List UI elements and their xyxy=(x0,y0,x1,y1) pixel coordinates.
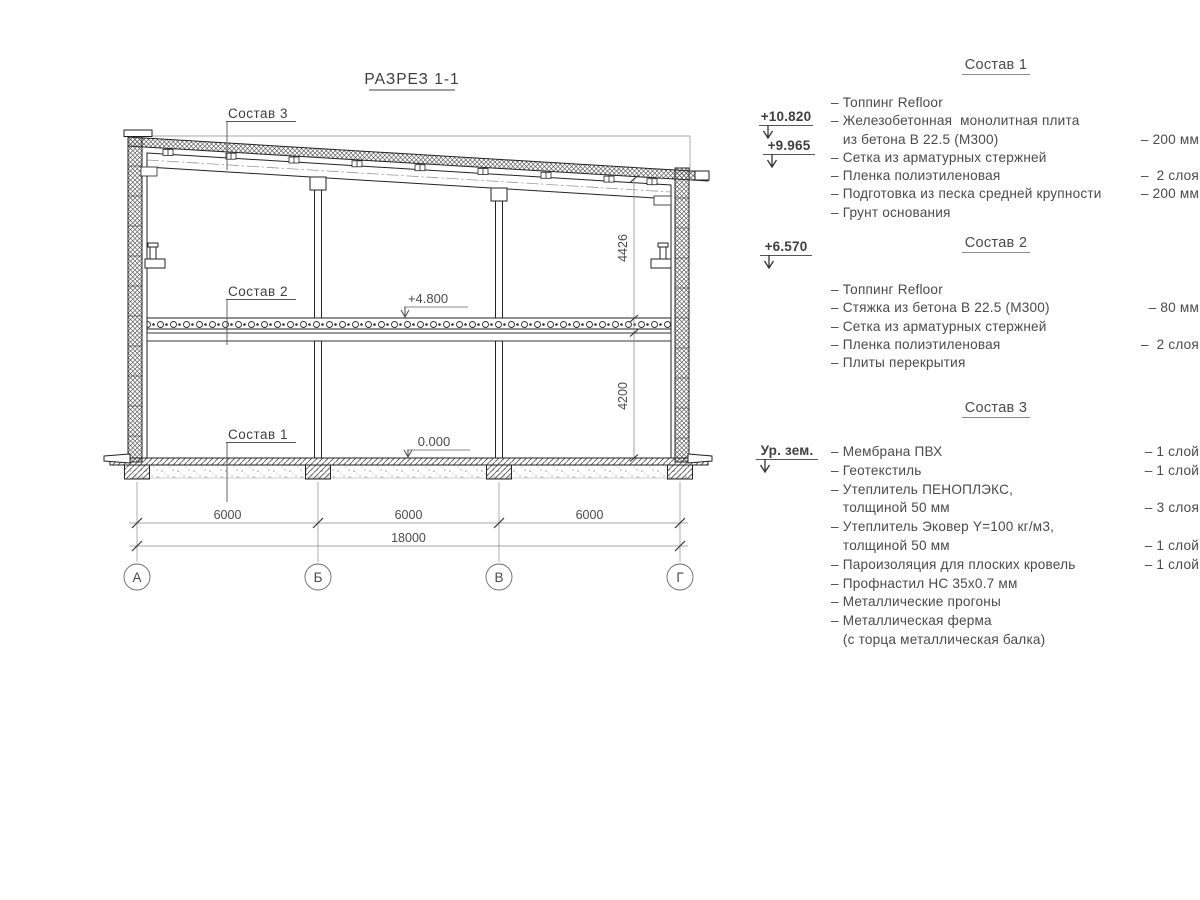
elevation-arrow-icon xyxy=(758,459,772,475)
section-drawing: РАЗРЕЗ 1-1 xyxy=(0,0,760,660)
list-item: – Профнастил НС 35х0.7 мм xyxy=(831,576,1199,595)
mid-floor-beam xyxy=(147,333,671,341)
list-item: – Подготовка из песка средней крупности–… xyxy=(831,186,1199,204)
list-item: – Грунт основания xyxy=(831,205,1199,223)
svg-text:Состав 1: Состав 1 xyxy=(228,427,288,442)
floor-slab-hatch xyxy=(110,458,708,465)
svg-text:РАЗРЕЗ 1-1: РАЗРЕЗ 1-1 xyxy=(364,71,459,88)
elevation-mark-9965: +9.965 xyxy=(763,138,815,155)
elevation-mark-10820: +10.820 xyxy=(759,109,813,126)
list-title: Состав 3 xyxy=(962,400,1031,418)
composition-list-1: Состав 1 – Топпинг Refloor – Железобетон… xyxy=(831,56,1199,223)
right-wall xyxy=(654,168,689,462)
elevation-arrow-icon xyxy=(401,307,409,317)
list-title: Состав 1 xyxy=(962,57,1031,75)
elevation-value: +6.570 xyxy=(765,239,808,254)
elevation-zero: 0.000 xyxy=(404,434,470,457)
svg-text:Г: Г xyxy=(676,570,684,585)
svg-text:4426: 4426 xyxy=(616,234,630,262)
mid-floor-slab xyxy=(147,318,671,341)
wall-consoles xyxy=(145,243,671,268)
svg-text:0.000: 0.000 xyxy=(418,434,451,449)
sand-bed xyxy=(130,465,688,478)
svg-text:В: В xyxy=(494,570,503,585)
list-item: – Топпинг Refloor xyxy=(831,282,1199,300)
axis-bubbles: А Б В Г xyxy=(124,564,693,590)
list-item: – Металлические прогоны xyxy=(831,594,1199,613)
list-item: – Плиты перекрытия xyxy=(831,355,1199,373)
elevation-arrow-icon xyxy=(404,450,412,457)
elevation-value: +10.820 xyxy=(761,109,812,124)
list-item: – Стяжка из бетона В 22.5 (М300)– 80 мм xyxy=(831,300,1199,318)
svg-text:6000: 6000 xyxy=(395,508,423,522)
svg-text:Состав 2: Состав 2 xyxy=(228,284,288,299)
list-item: – Пленка полиэтиленовая– 2 слоя xyxy=(831,168,1199,186)
list-item: – Мембрана ПВХ– 1 слой xyxy=(831,444,1199,463)
list-item: – Железобетонная монолитная плита xyxy=(831,113,1199,131)
drawing-title: РАЗРЕЗ 1-1 xyxy=(364,71,459,90)
svg-text:А: А xyxy=(132,570,141,585)
elevation-value: +9.965 xyxy=(768,138,811,153)
composition-list-2: Состав 2 – Топпинг Refloor – Стяжка из б… xyxy=(831,234,1199,373)
column-v-lower xyxy=(496,341,503,458)
elevation-arrow-icon xyxy=(765,154,779,170)
list-item: – Пленка полиэтиленовая– 2 слоя xyxy=(831,337,1199,355)
list-item: толщиной 50 мм– 1 слой xyxy=(831,538,1199,557)
svg-text:Б: Б xyxy=(314,570,323,585)
list-item: – Утеплитель ПЕНОПЛЭКС, xyxy=(831,482,1199,501)
elevation-mark-ground: Ур. зем. xyxy=(756,443,818,460)
list-item: (с торца металлическая балка) xyxy=(831,632,1199,651)
svg-text:6000: 6000 xyxy=(214,508,242,522)
list-item: – Топпинг Refloor xyxy=(831,95,1199,113)
elevation-value: Ур. зем. xyxy=(761,443,814,458)
column-b-lower xyxy=(315,341,322,458)
svg-text:+4.800: +4.800 xyxy=(408,291,448,306)
svg-text:4200: 4200 xyxy=(616,382,630,410)
list-item: – Утеплитель Эковер Y=100 кг/м3, xyxy=(831,519,1199,538)
elevation-mark-6570: +6.570 xyxy=(760,239,812,256)
extension-lines xyxy=(137,482,680,562)
slab-edge-left xyxy=(104,454,130,463)
list-item: – Сетка из арматурных стержней xyxy=(831,150,1199,168)
list-item: – Сетка из арматурных стержней xyxy=(831,319,1199,337)
column-v-upper xyxy=(496,201,503,318)
svg-text:18000: 18000 xyxy=(391,531,426,545)
horizontal-dimensions: 6000 6000 6000 18000 xyxy=(129,482,688,562)
column-b-upper xyxy=(315,190,322,318)
list-item: толщиной 50 мм– 3 слоя xyxy=(831,500,1199,519)
list-item: из бетона В 22.5 (М300)– 200 мм xyxy=(831,132,1199,150)
elevation-mid: +4.800 xyxy=(401,291,468,317)
left-wall xyxy=(124,130,157,462)
list-item: – Пароизоляция для плоских кровель– 1 сл… xyxy=(831,557,1199,576)
elevation-arrow-icon xyxy=(762,255,776,271)
list-item: – Геотекстиль– 1 слой xyxy=(831,463,1199,482)
slab-edge-right xyxy=(688,454,712,463)
svg-text:Состав 3: Состав 3 xyxy=(228,106,288,121)
svg-text:6000: 6000 xyxy=(576,508,604,522)
list-item: – Металлическая ферма xyxy=(831,613,1199,632)
composition-list-3: Состав 3 – Мембрана ПВХ– 1 слой – Геотек… xyxy=(831,399,1199,651)
list-title: Состав 2 xyxy=(962,235,1031,253)
left-wall-cap xyxy=(124,130,152,137)
